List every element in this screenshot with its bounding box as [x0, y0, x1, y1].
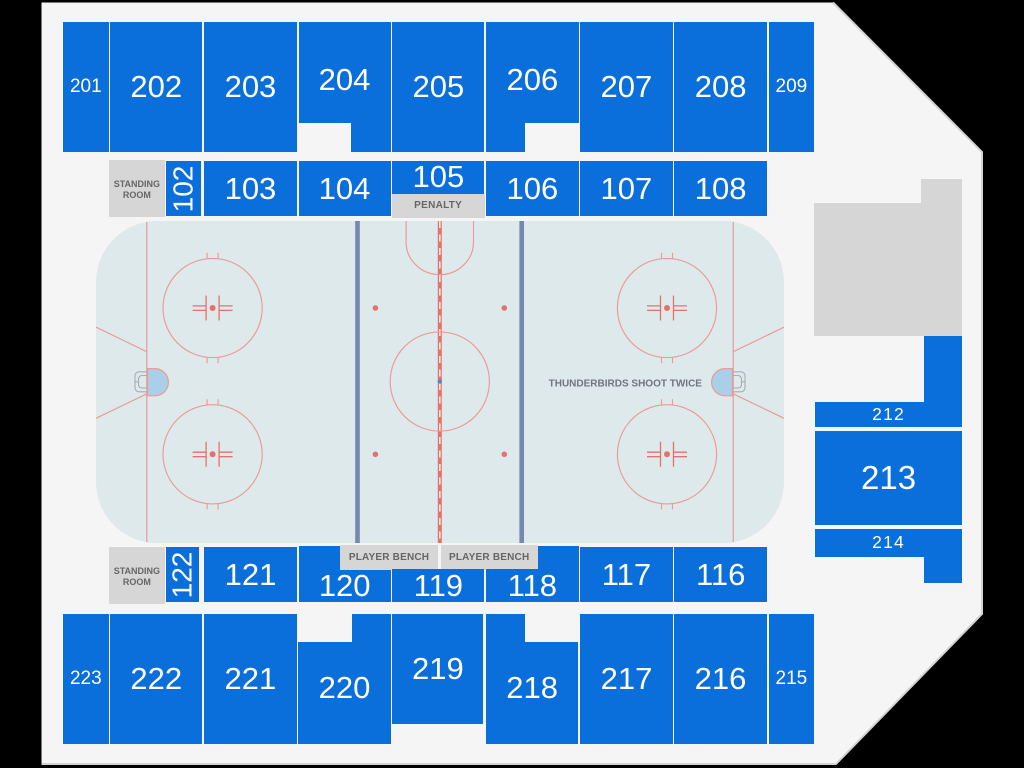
svg-text:THUNDERBIRDS SHOOT TWICE: THUNDERBIRDS SHOOT TWICE — [548, 378, 702, 389]
